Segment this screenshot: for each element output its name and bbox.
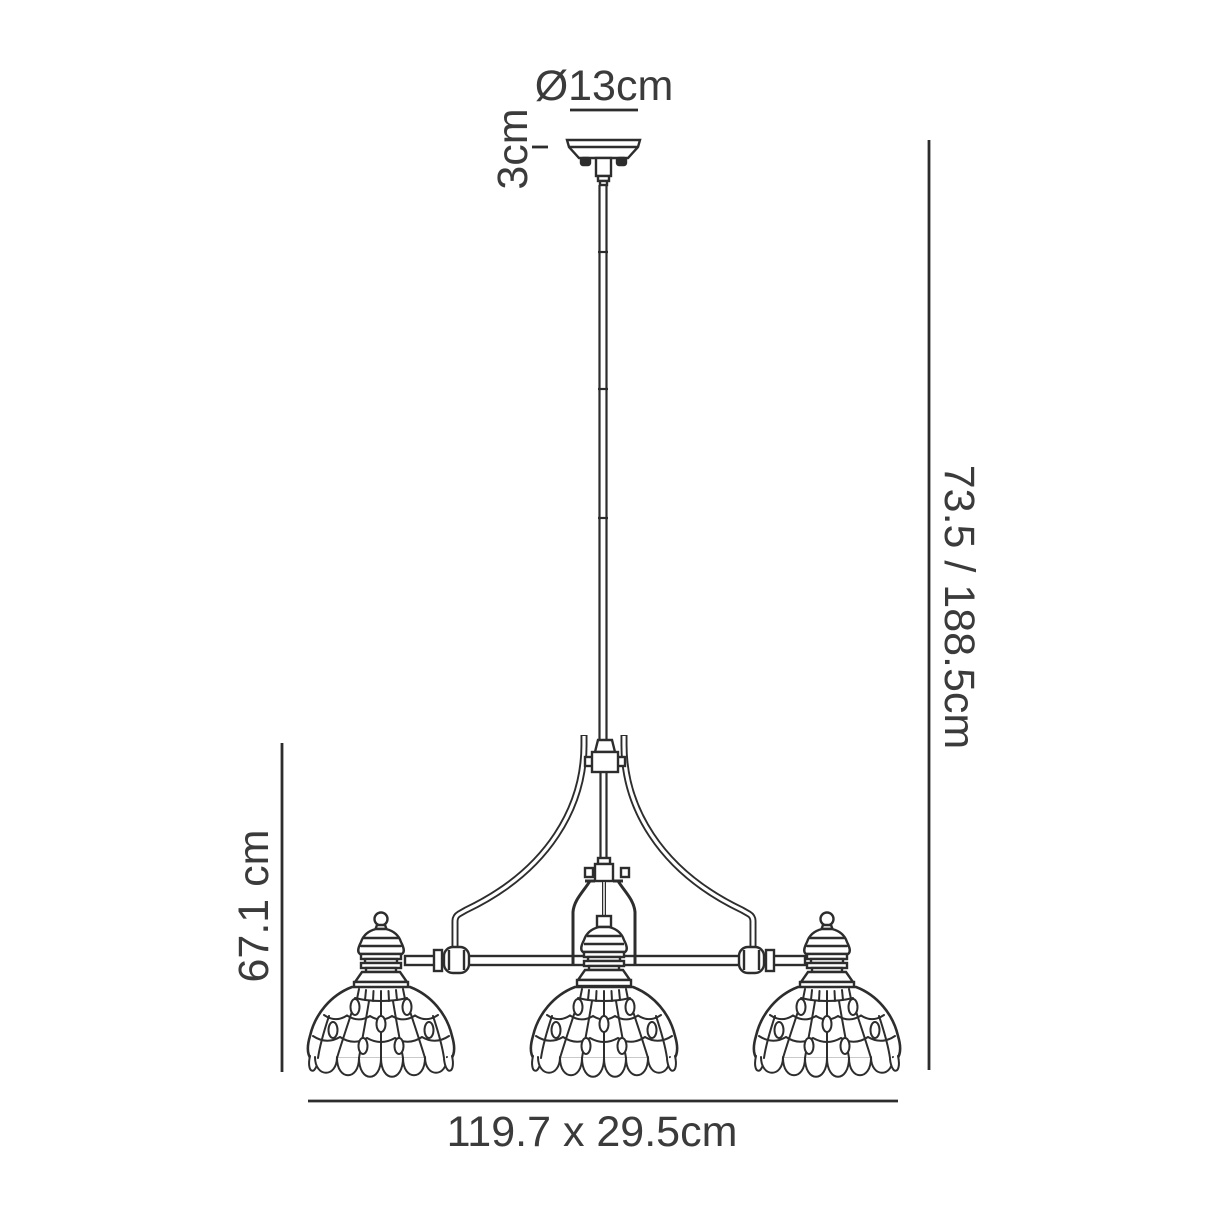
ball-joint-right — [739, 947, 764, 973]
yoke-hub — [585, 740, 625, 772]
canopy-foot — [581, 158, 590, 165]
overall-height-label: 73.5 / 188.5cm — [935, 465, 983, 749]
tiffany-shade — [754, 987, 900, 1077]
lamp-holder — [800, 913, 854, 989]
lamp-holder — [354, 913, 408, 989]
body-height-label: 67.1 cm — [230, 830, 278, 983]
canopy-stem — [596, 158, 611, 176]
fixture-size-label: 119.7 x 29.5cm — [447, 1108, 738, 1156]
yoke-arm-left — [455, 735, 584, 950]
bar-ring-right — [766, 950, 774, 971]
diagram-svg: Ø13cm 3cm 73.5 / 188.5cm 67.1 cm 119.7 x… — [0, 0, 1214, 1214]
centre-collar — [595, 864, 613, 881]
canopy-diameter-label: Ø13cm — [535, 62, 674, 110]
canopy-height-label: 3cm — [489, 108, 537, 189]
canopy-foot — [617, 158, 626, 165]
lamp-holder — [577, 916, 631, 986]
ball-joint-left — [444, 947, 469, 973]
lamp-left — [308, 913, 454, 1077]
lamp-right — [754, 913, 900, 1077]
ceiling-canopy — [567, 140, 640, 185]
tiffany-shade — [531, 987, 677, 1077]
lamp-center — [531, 916, 677, 1077]
bar-ring-left — [434, 950, 442, 971]
yoke-arm-right — [624, 735, 753, 950]
tiffany-shade — [308, 987, 454, 1077]
pendant-dimension-diagram: Ø13cm 3cm 73.5 / 188.5cm 67.1 cm 119.7 x… — [0, 0, 1214, 1214]
